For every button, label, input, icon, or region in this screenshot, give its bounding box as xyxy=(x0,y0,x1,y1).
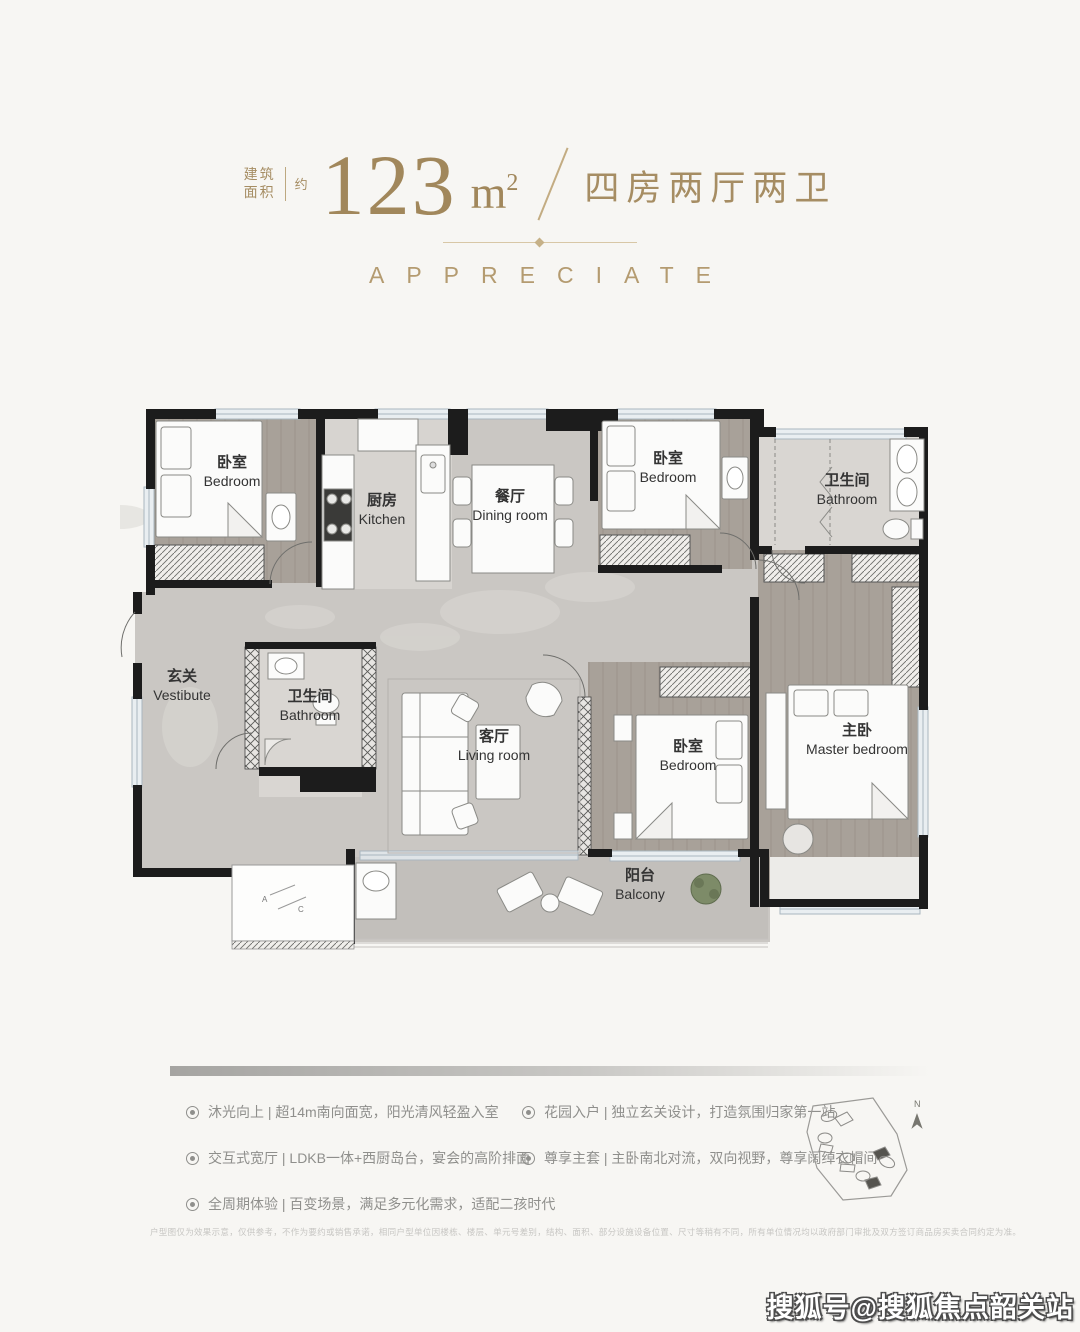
compass-icon: N xyxy=(912,1099,922,1128)
svg-text:Bedroom: Bedroom xyxy=(640,469,697,485)
diamond-icon xyxy=(535,238,545,248)
area-value: 123 xyxy=(322,145,457,227)
room-label-balcony: 阳台 xyxy=(625,866,655,884)
feature-item: 沐光向上 | 超14m南向面宽，阳光清风轻盈入室 xyxy=(186,1102,499,1122)
room-label-vestibule: 玄关 xyxy=(167,667,197,685)
area-unit: m2 xyxy=(471,166,519,219)
area-prefix-label: 建筑 面积 xyxy=(244,166,276,201)
room-label-bedroom2: 卧室 xyxy=(653,449,683,467)
svg-text:Bathroom: Bathroom xyxy=(817,491,878,507)
floorplan-poster: { "header": { "area_prefix": "建筑\n面积", "… xyxy=(0,0,1080,1332)
bullet-icon xyxy=(522,1152,535,1165)
svg-text:Bathroom: Bathroom xyxy=(280,707,341,723)
disclaimer: 户型图仅为效果示意，仅供参考，不作为要约或销售承诺，相同户型单位因楼栋、楼层、单… xyxy=(150,1226,930,1238)
bullet-icon xyxy=(186,1106,199,1119)
svg-text:Dining room: Dining room xyxy=(472,507,547,523)
header: 建筑 面积 约 123 m2 四房两厅两卫 xyxy=(0,112,1080,227)
room-label-bedroom3: 卧室 xyxy=(673,737,703,755)
watermark: 搜狐号@搜狐焦点韶关站 xyxy=(767,1286,1074,1325)
feature-item: 交互式宽厅 | LDKB一体+西厨岛台，宴会的高阶排面 xyxy=(186,1148,530,1168)
svg-text:Living room: Living room xyxy=(458,747,530,763)
svg-text:Bedroom: Bedroom xyxy=(204,473,261,489)
layout-text: 四房两厅两卫 xyxy=(584,160,836,211)
svg-text:N: N xyxy=(914,1099,921,1109)
room-label-bedroom1: 卧室 xyxy=(217,453,247,471)
room-label-dining: 餐厅 xyxy=(495,487,525,505)
room-label-living: 客厅 xyxy=(478,727,509,745)
svg-text:C: C xyxy=(298,905,304,914)
bullet-icon xyxy=(186,1152,199,1165)
room-label-kitchen: 厨房 xyxy=(367,491,397,509)
master-bay xyxy=(770,857,926,905)
svg-text:Bedroom: Bedroom xyxy=(660,757,717,773)
svg-text:Kitchen: Kitchen xyxy=(359,511,406,527)
svg-text:Balcony: Balcony xyxy=(615,886,665,902)
site-buildings xyxy=(818,1109,896,1189)
slash-divider xyxy=(538,147,569,220)
area-prefix: 建筑 面积 约 xyxy=(244,166,308,201)
bullet-icon xyxy=(522,1106,535,1119)
prefix-divider xyxy=(285,167,286,201)
svg-text:Master bedroom: Master bedroom xyxy=(806,741,908,757)
subtitle: APPRECIATE xyxy=(0,262,1080,289)
room-label-bathroom2: 卫生间 xyxy=(287,687,332,705)
siteplan-sketch: N xyxy=(795,1092,930,1210)
section-divider-bar xyxy=(170,1066,930,1076)
bullet-icon xyxy=(186,1198,199,1211)
room-label-master: 主卧 xyxy=(842,721,872,739)
floorplan-drawing: A C 卧室 Bedroom 厨房 Kitchen 餐厅 Dining room… xyxy=(120,397,940,952)
svg-text:A: A xyxy=(262,895,268,904)
svg-text:Vestibute: Vestibute xyxy=(153,687,211,703)
room-label-bathroom1: 卫生间 xyxy=(824,471,869,489)
feature-item: 花园入户 | 独立玄关设计，打造氛围归家第一站 xyxy=(522,1102,835,1122)
ornament-divider xyxy=(443,239,637,247)
feature-item: 全周期体验 | 百变场景，满足多元化需求，适配二孩时代 xyxy=(186,1194,555,1214)
ac-platform: A C xyxy=(232,865,354,949)
approx-label: 约 xyxy=(295,174,308,193)
